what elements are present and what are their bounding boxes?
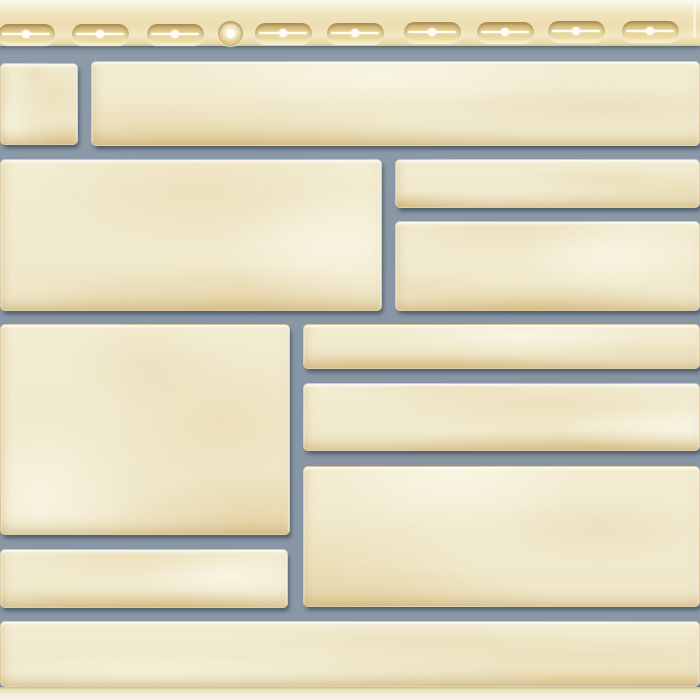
stone (0, 621, 700, 687)
nail-slot (72, 24, 129, 45)
stone (0, 159, 382, 311)
nail-slot (404, 22, 461, 43)
nailing-strip (0, 0, 700, 46)
stone (395, 221, 700, 311)
nail-slot-center-dot (646, 27, 654, 35)
nail-slot-center-dot (279, 29, 287, 37)
siding-panel-photo (0, 0, 700, 700)
nail-slot-center-dot (428, 28, 436, 36)
nail-slot (0, 24, 55, 45)
nail-slot (477, 22, 534, 43)
stone (0, 324, 290, 535)
nail-slot (327, 23, 384, 44)
nail-slot-center-dot (501, 28, 509, 36)
nail-slot (622, 21, 679, 42)
stone (0, 63, 78, 145)
stone (395, 159, 700, 208)
nail-slot-center-dot (171, 30, 179, 38)
nail-hole-center-dot (226, 29, 235, 38)
nail-slot-center-dot (351, 29, 359, 37)
stone (0, 549, 288, 608)
nail-slot-center-dot (96, 30, 104, 38)
nail-slot (548, 21, 605, 42)
stone (303, 466, 700, 607)
nail-slot (147, 24, 204, 45)
bottom-lock-edge (0, 687, 700, 700)
stone (303, 324, 700, 369)
stone (303, 383, 700, 451)
nail-hole-round (218, 21, 243, 46)
stone (91, 61, 700, 146)
nail-slot-center-dot (572, 27, 580, 35)
nail-slot-center-dot (22, 30, 30, 38)
mortar-background (0, 0, 700, 700)
nail-slot (255, 23, 312, 44)
